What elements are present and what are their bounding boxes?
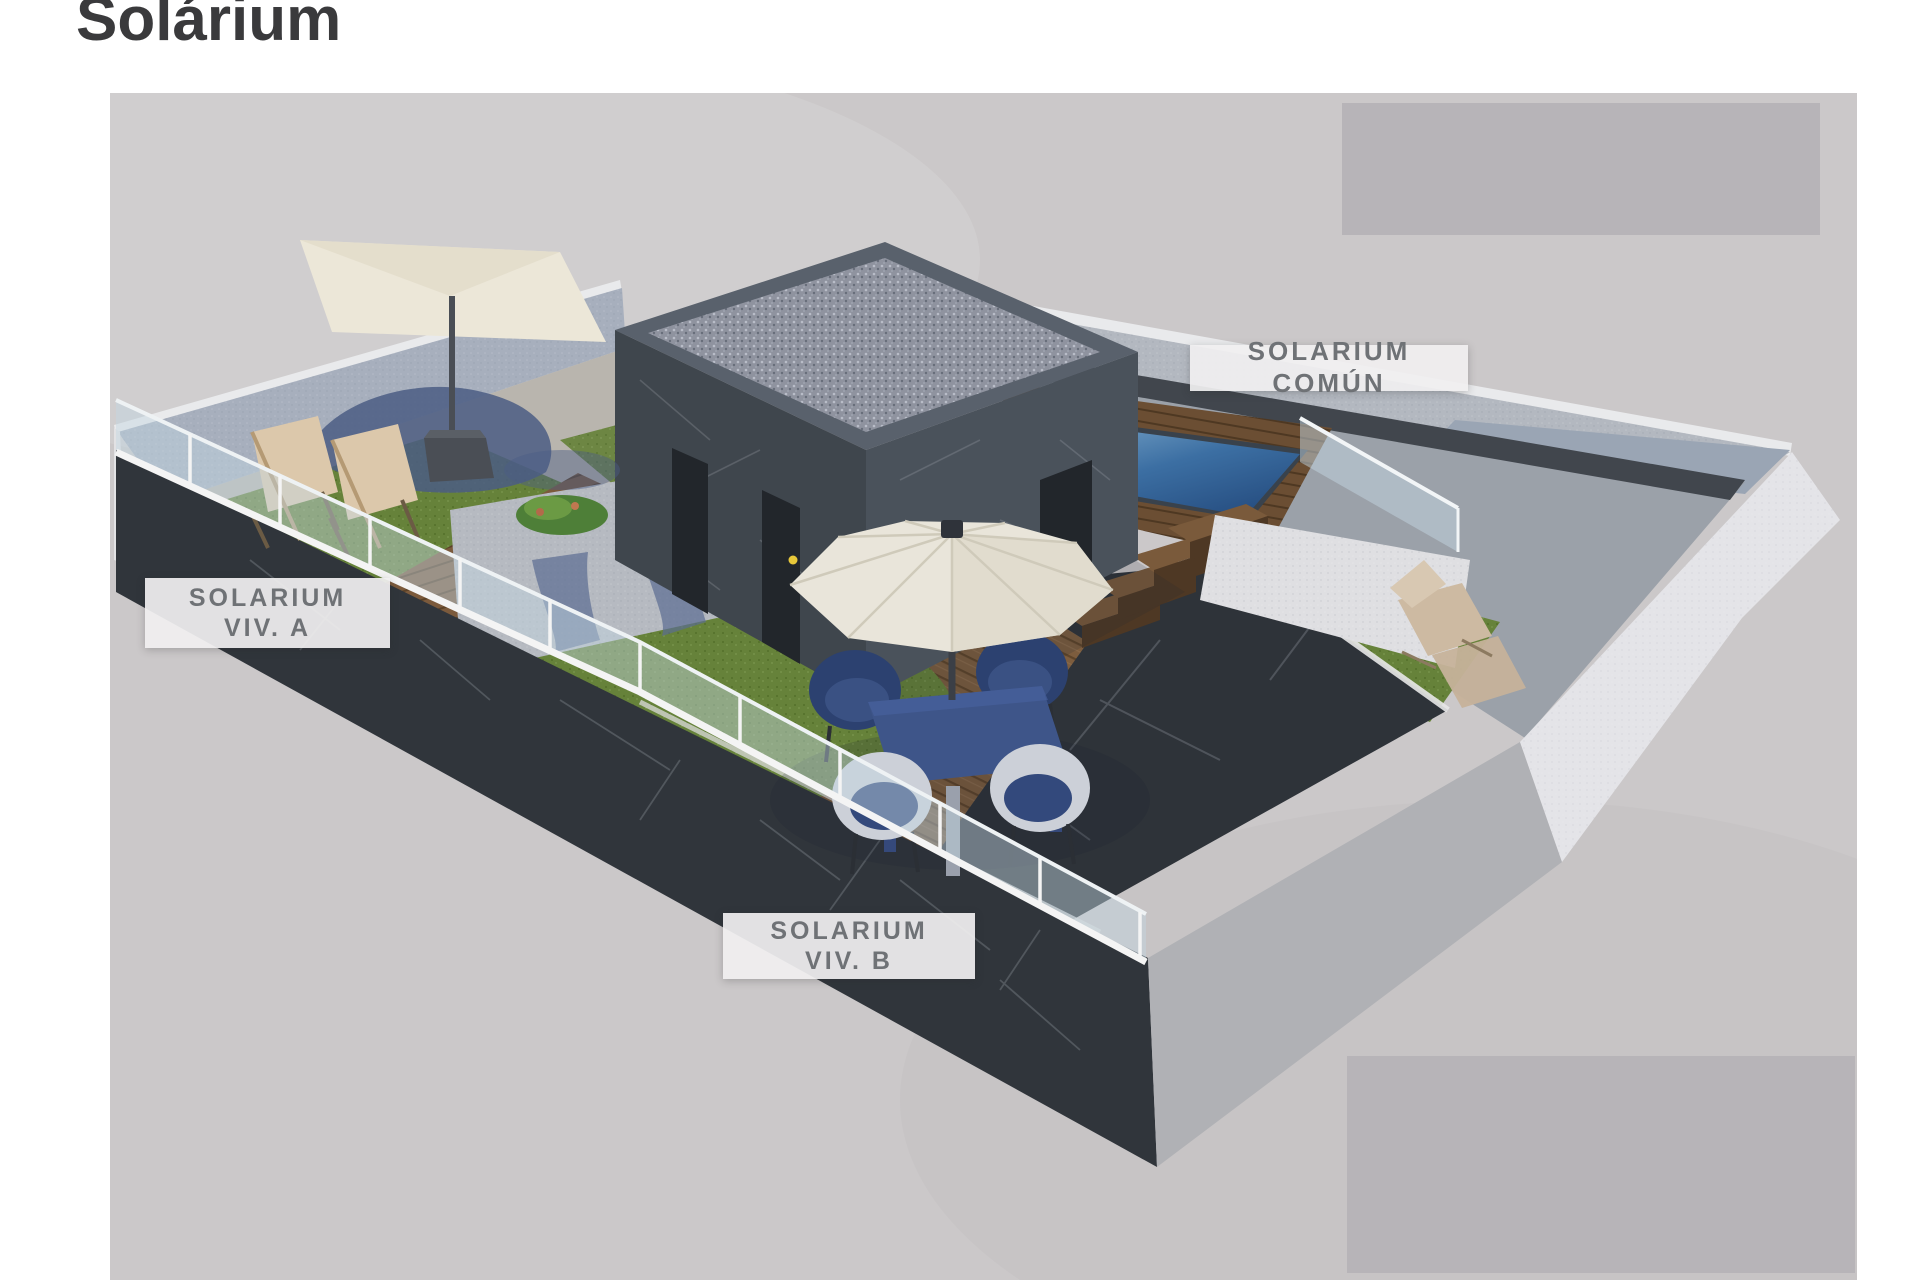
door-handle-light <box>789 556 798 565</box>
label-solarium-viv-b: SOLARIUM VIV. B <box>723 913 975 979</box>
page: Solárium <box>0 0 1920 1280</box>
label-viv-a-line2: VIV. A <box>224 613 311 644</box>
label-solarium-comun: SOLARIUM COMÚN <box>1190 345 1468 391</box>
label-viv-b-line2: VIV. B <box>805 946 893 977</box>
redacted-box-bottom <box>1347 1056 1855 1273</box>
solarium-3d-render <box>110 93 1857 1280</box>
label-solarium-viv-a: SOLARIUM VIV. A <box>145 578 390 648</box>
redacted-box-top <box>1342 103 1820 235</box>
label-solarium-comun-text: SOLARIUM COMÚN <box>1190 336 1468 399</box>
label-viv-b-line1: SOLARIUM <box>770 916 927 947</box>
label-viv-a-line1: SOLARIUM <box>189 583 346 614</box>
